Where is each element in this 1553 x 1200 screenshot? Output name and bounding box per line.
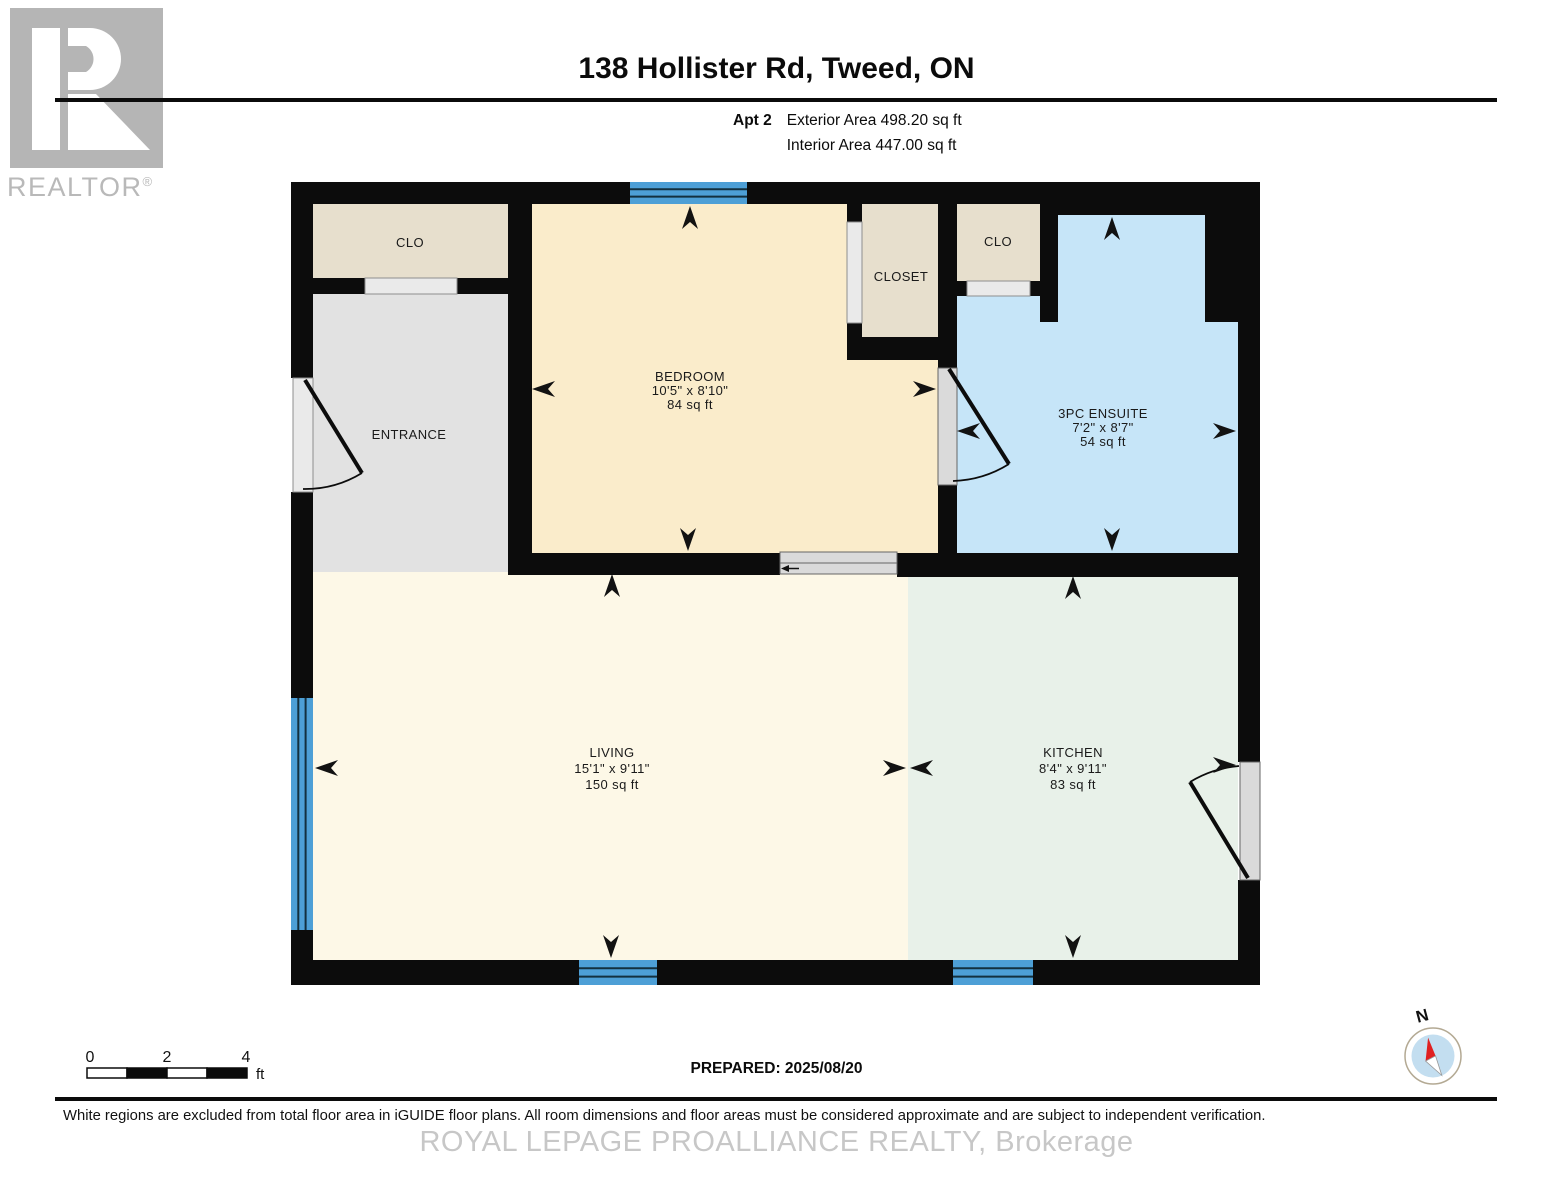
label-living-dims: 15'1" x 9'11" [574, 761, 650, 776]
window-living-left [291, 698, 313, 930]
brokerage-watermark: ROYAL LEPAGE PROALLIANCE REALTY, Brokera… [0, 1126, 1553, 1159]
label-kitchen-area: 83 sq ft [1050, 777, 1096, 792]
window-living-bottom [579, 960, 657, 985]
label-closet: CLOSET [874, 269, 928, 284]
label-living-area: 150 sq ft [585, 777, 638, 792]
label-clo1: CLO [396, 235, 424, 250]
window-kitchen-bottom [953, 960, 1033, 985]
prepared-date: PREPARED: 2025/08/20 [0, 1060, 1553, 1078]
room-fills [313, 204, 1238, 960]
sliding-door [780, 552, 897, 574]
label-bedroom: BEDROOM [655, 369, 725, 384]
room-entrance [313, 278, 508, 572]
label-bedroom-area: 84 sq ft [667, 397, 713, 412]
window-bedroom-top [630, 182, 747, 204]
header-divider [55, 98, 1497, 102]
footer-divider [55, 1097, 1497, 1101]
opening-clo2 [967, 281, 1030, 296]
label-entrance: ENTRANCE [372, 427, 447, 442]
label-ensuite-area: 54 sq ft [1080, 434, 1126, 449]
floorplan: CLO ENTRANCE BEDROOM 10'5" x 8'10" 84 sq… [0, 0, 1553, 1200]
label-kitchen: KITCHEN [1043, 745, 1103, 760]
label-kitchen-dims: 8'4" x 9'11" [1039, 761, 1107, 776]
compass-north-label: N [1414, 1005, 1431, 1027]
label-ensuite-dims: 7'2" x 8'7" [1072, 420, 1133, 435]
opening-closet [847, 222, 862, 323]
label-bedroom-dims: 10'5" x 8'10" [652, 383, 729, 398]
label-ensuite: 3PC ENSUITE [1058, 406, 1148, 421]
opening-clo1 [365, 278, 457, 294]
label-living: LIVING [589, 745, 634, 760]
label-clo2: CLO [984, 234, 1012, 249]
disclaimer-text: White regions are excluded from total fl… [63, 1108, 1363, 1124]
